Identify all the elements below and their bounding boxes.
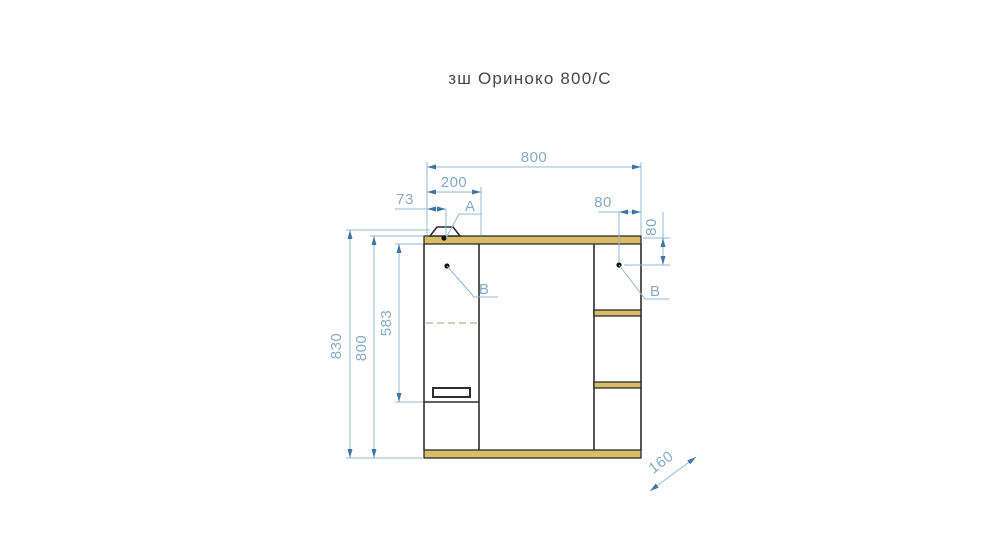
right-shelf-lower xyxy=(594,382,641,388)
drawing-page: зш Ориноко 800/С xyxy=(0,0,1000,550)
lamp-point-dot xyxy=(441,235,446,240)
bottom-edge-strip xyxy=(424,450,641,458)
cabinet-front-view xyxy=(424,227,641,458)
dimension-lines xyxy=(350,167,696,491)
top-edge-strip xyxy=(424,236,641,244)
dim-total-height: 830 xyxy=(328,333,345,360)
dim-depth: 160 xyxy=(646,448,677,478)
dim-door-height: 583 xyxy=(378,310,395,337)
right-shelf-upper xyxy=(594,310,641,316)
dim-shelf-point-from-top: 80 xyxy=(643,218,660,236)
dim-body-height: 800 xyxy=(353,335,370,362)
callout-lamp-label: A xyxy=(465,198,475,215)
callout-door-point-label: B xyxy=(479,281,489,298)
door-handle xyxy=(433,388,470,397)
callout-shelf-point-label: B xyxy=(650,283,660,300)
technical-drawing-canvas: зш Ориноко 800/С xyxy=(0,0,1000,550)
drawing-title: зш Ориноко 800/С xyxy=(448,69,612,88)
dim-door-width: 200 xyxy=(441,174,468,191)
dim-total-width: 800 xyxy=(521,149,548,166)
callout-door-point: B xyxy=(447,266,498,298)
dim-shelf-point-from-right: 80 xyxy=(594,194,612,211)
top-lamp xyxy=(430,227,460,236)
callout-shelf-point: B xyxy=(619,265,669,300)
dim-lamp-offset: 73 xyxy=(396,191,414,208)
